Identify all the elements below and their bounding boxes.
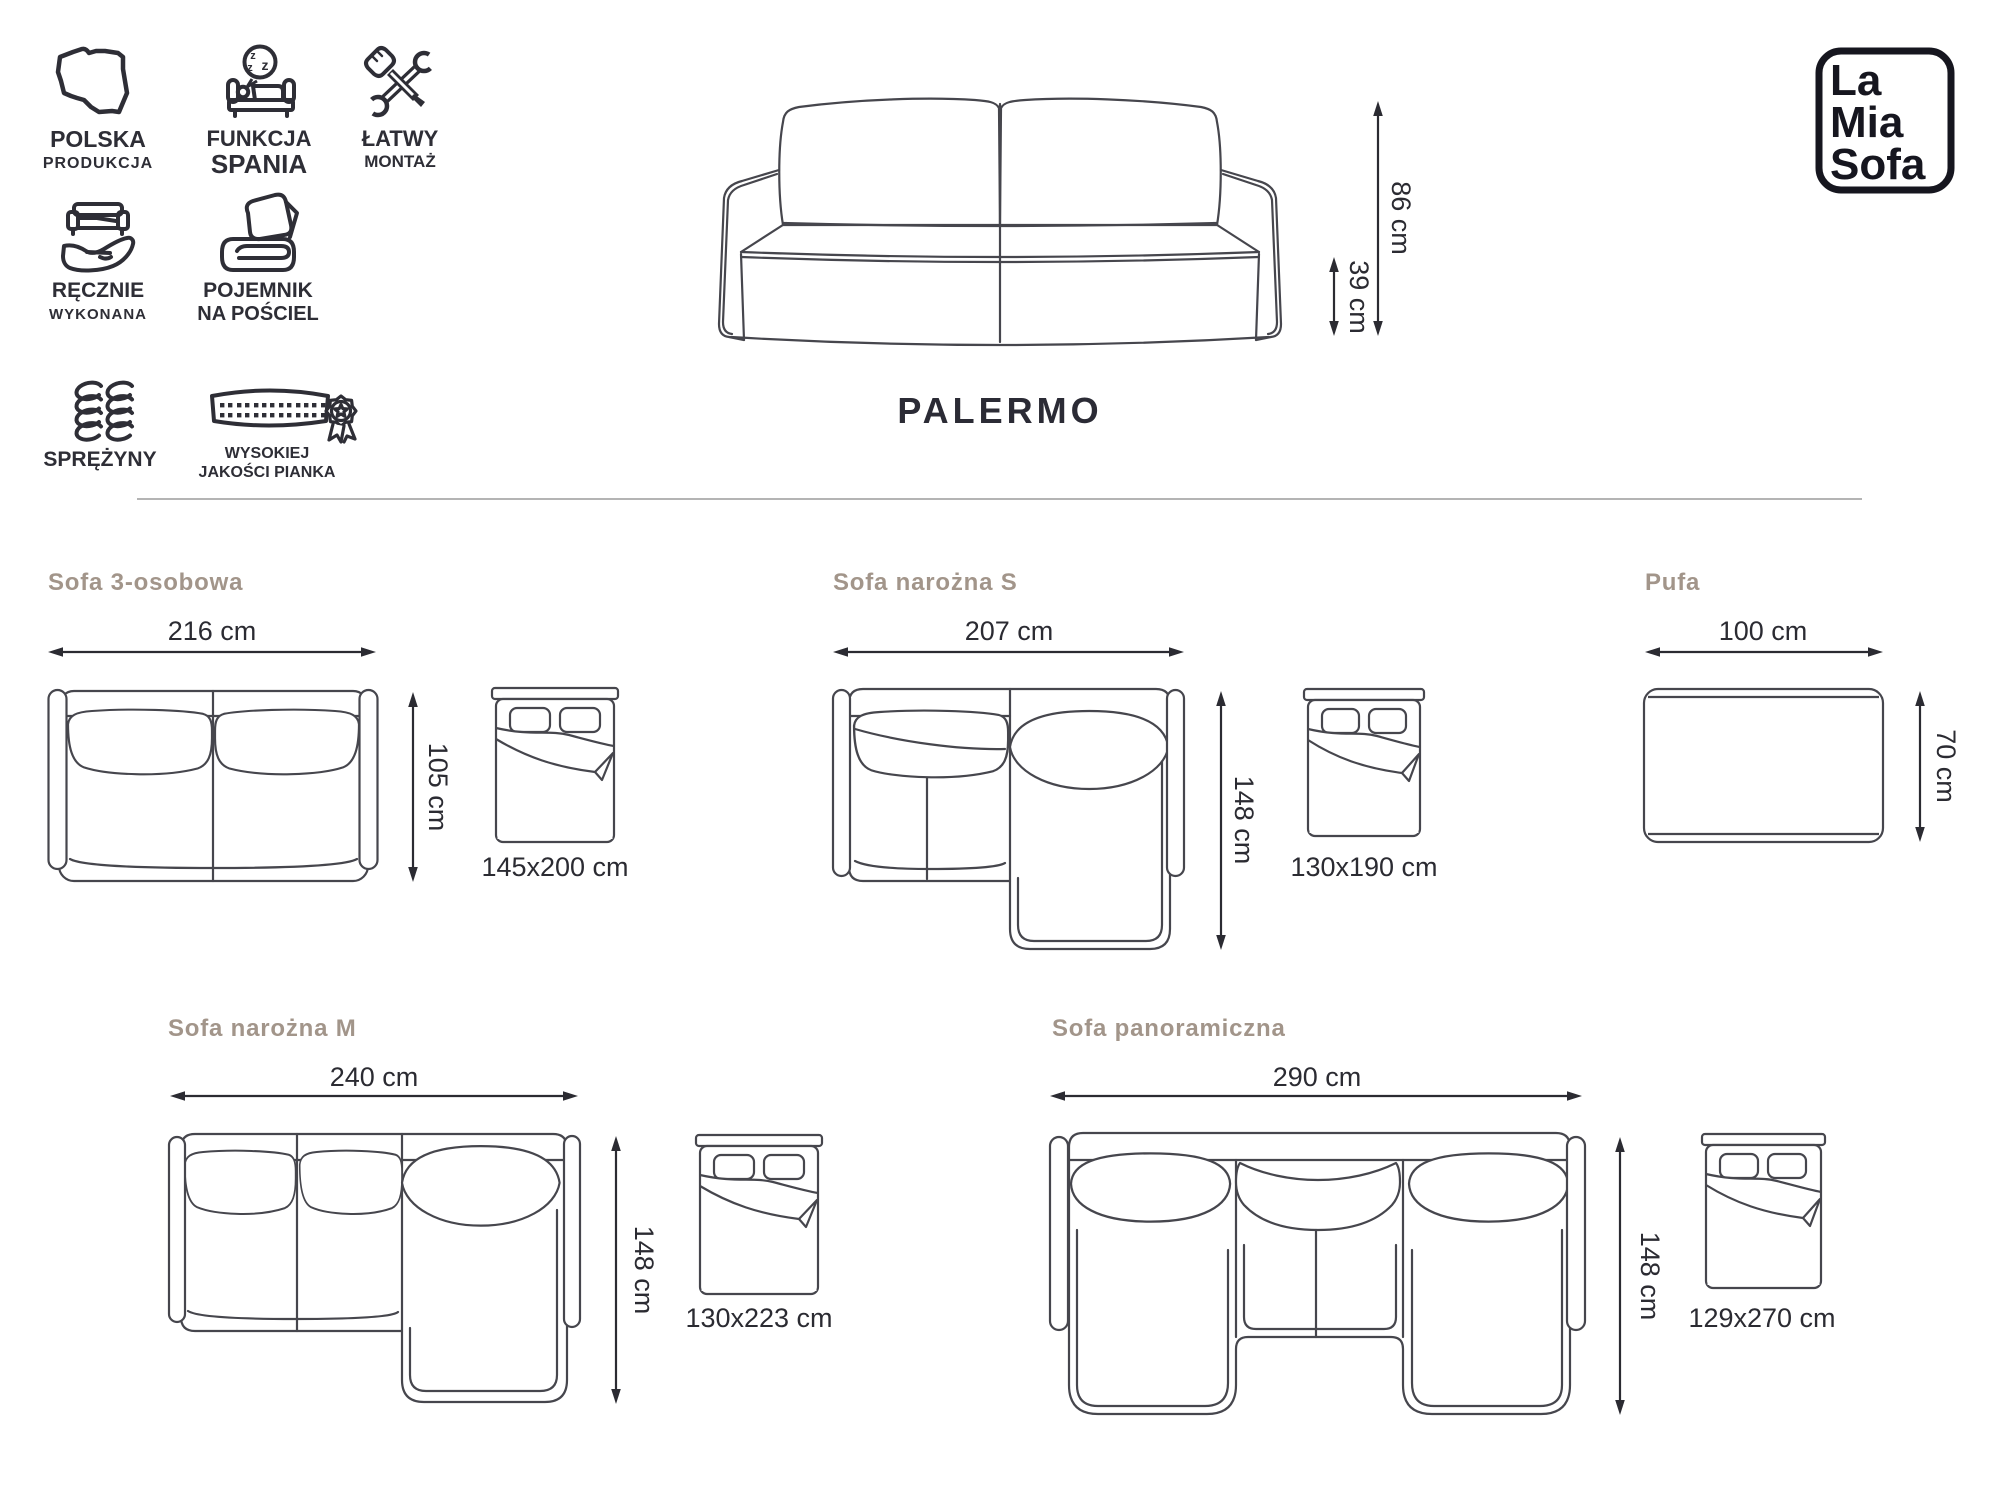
svg-text:129x270 cm: 129x270 cm [1688,1303,1835,1333]
svg-text:39 cm: 39 cm [1344,260,1374,334]
svg-text:RĘCZNIE: RĘCZNIE [52,279,144,302]
svg-text:145x200 cm: 145x200 cm [481,852,628,882]
svg-text:z: z [247,62,253,74]
svg-text:z: z [262,57,269,73]
svg-text:86 cm: 86 cm [1386,181,1416,255]
svg-text:70 cm: 70 cm [1931,729,1961,803]
svg-text:MONTAŻ: MONTAŻ [364,152,435,171]
svg-text:Sofa panoramiczna: Sofa panoramiczna [1052,1015,1286,1042]
svg-text:SPRĘŻYNY: SPRĘŻYNY [43,448,156,471]
svg-text:148 cm: 148 cm [629,1226,659,1315]
svg-text:FUNKCJA: FUNKCJA [206,126,311,151]
svg-text:ŁATWY: ŁATWY [362,126,439,151]
svg-text:Sofa narożna S: Sofa narożna S [833,569,1018,596]
svg-text:105 cm: 105 cm [423,743,453,832]
svg-text:PRODUKCJA: PRODUKCJA [43,155,153,172]
svg-text:JAKOŚCI PIANKA: JAKOŚCI PIANKA [199,462,336,481]
svg-text:z: z [250,50,256,62]
svg-text:240 cm: 240 cm [330,1062,419,1092]
svg-text:100 cm: 100 cm [1719,616,1808,646]
svg-text:290 cm: 290 cm [1273,1062,1362,1092]
svg-text:WYKONANA: WYKONANA [49,306,147,323]
svg-text:216 cm: 216 cm [168,616,257,646]
svg-text:Sofa narożna M: Sofa narożna M [168,1015,357,1042]
svg-text:POJEMNIK: POJEMNIK [203,279,313,302]
svg-text:POLSKA: POLSKA [50,126,146,152]
svg-text:SPANIA: SPANIA [211,149,308,179]
svg-text:130x190 cm: 130x190 cm [1290,852,1437,882]
svg-text:Sofa 3-osobowa: Sofa 3-osobowa [48,569,243,596]
svg-text:NA POŚCIEL: NA POŚCIEL [197,301,319,325]
svg-text:148 cm: 148 cm [1229,776,1259,865]
svg-text:207 cm: 207 cm [965,616,1054,646]
svg-text:PALERMO: PALERMO [897,390,1102,431]
svg-text:Sofa: Sofa [1830,140,1926,189]
svg-text:130x223 cm: 130x223 cm [685,1303,832,1333]
svg-text:WYSOKIEJ: WYSOKIEJ [225,445,309,462]
svg-text:148 cm: 148 cm [1635,1232,1665,1321]
svg-text:Pufa: Pufa [1645,569,1700,596]
